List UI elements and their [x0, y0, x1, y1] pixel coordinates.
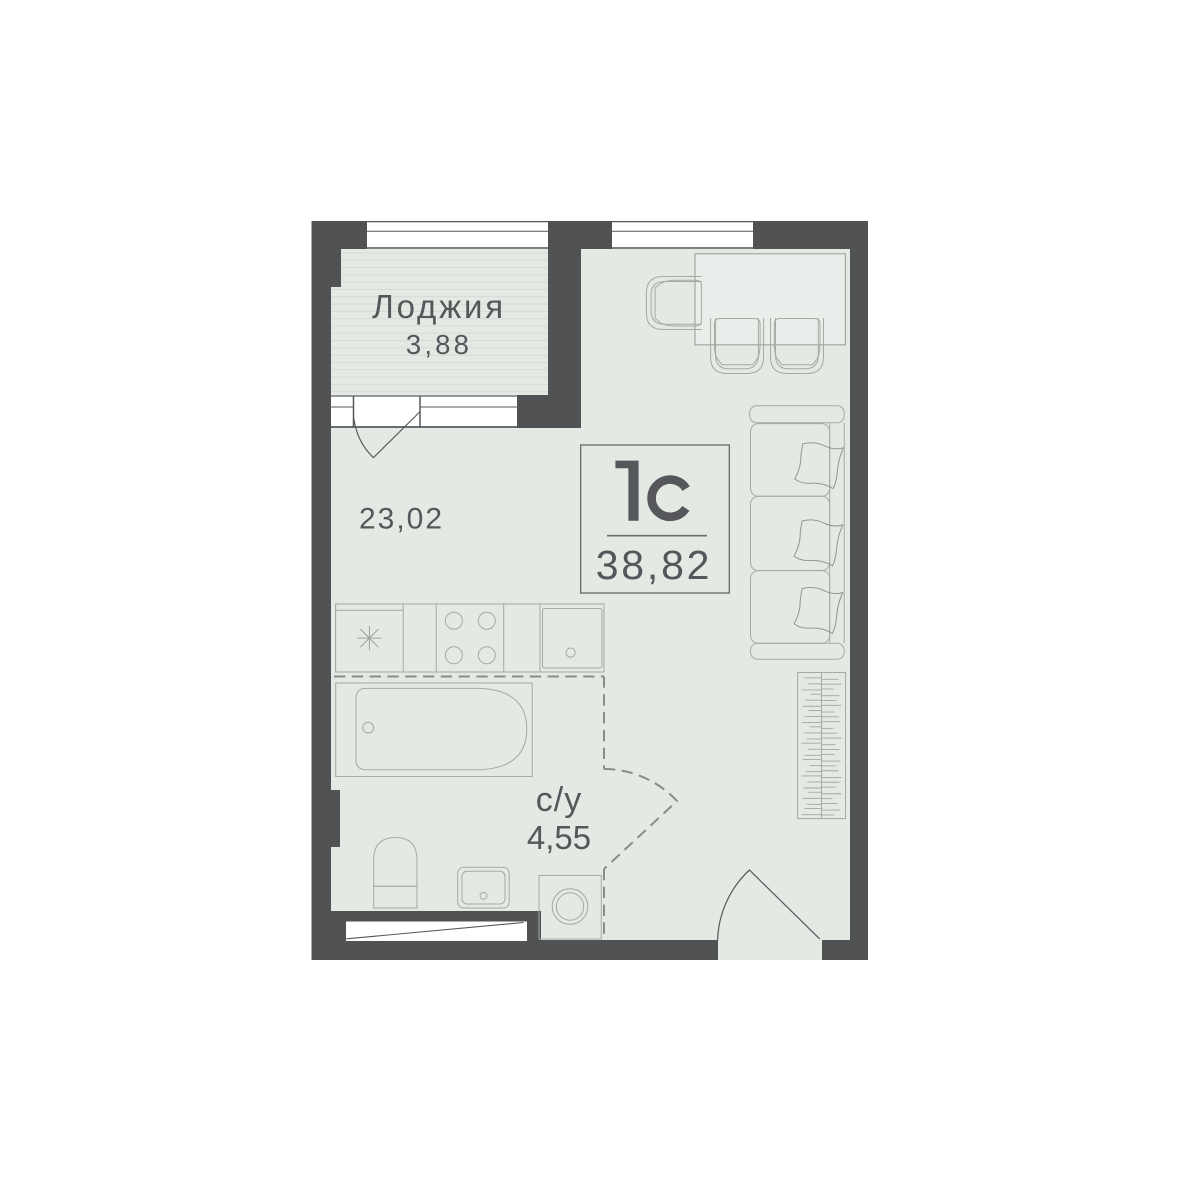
svg-text:Лоджия: Лоджия: [372, 288, 506, 325]
svg-text:23,02: 23,02: [359, 503, 444, 536]
svg-text:4,55: 4,55: [527, 819, 591, 856]
svg-text:3,88: 3,88: [406, 329, 472, 360]
svg-text:38,82: 38,82: [596, 542, 713, 588]
svg-text:с/у: с/у: [536, 781, 582, 819]
